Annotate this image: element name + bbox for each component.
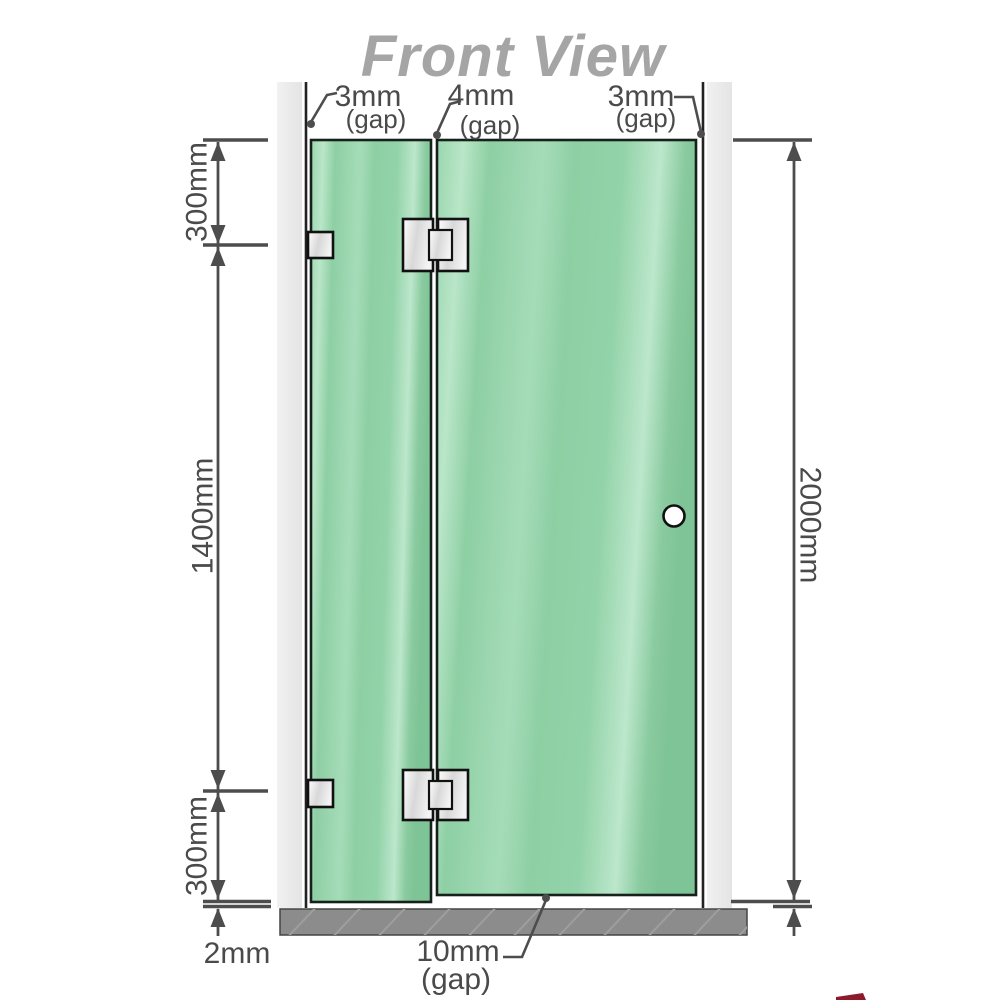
diagram-stage: Front View bbox=[0, 0, 1000, 1000]
dim-label-left-middle-1400mm: 1400mm bbox=[187, 458, 220, 575]
gap-note-bottom: (gap) bbox=[421, 963, 491, 996]
wall-bracket-bottom bbox=[308, 780, 333, 807]
gap-note-left: (gap) bbox=[346, 104, 407, 134]
gap-leader-left bbox=[307, 93, 337, 128]
shower-screen-diagram: Front View bbox=[0, 0, 1000, 1000]
gap-note-right: (gap) bbox=[616, 103, 677, 133]
gap-leader-right bbox=[674, 97, 705, 138]
left-wall bbox=[277, 82, 302, 908]
hinge-bottom bbox=[403, 770, 468, 820]
wall-bracket-top bbox=[308, 232, 333, 258]
door-glass-panel bbox=[437, 140, 696, 895]
right-wall bbox=[707, 82, 732, 908]
hinge-top bbox=[403, 219, 468, 271]
dim-label-left-top-300mm: 300mm bbox=[181, 142, 214, 242]
door-knob bbox=[664, 506, 685, 527]
gap-note-middle: (gap) bbox=[460, 110, 521, 140]
dim-label-floor-gap-2mm: 2mm bbox=[204, 937, 271, 970]
logo-fragment bbox=[836, 993, 866, 1000]
gap-label-middle-4mm: 4mm bbox=[448, 79, 515, 112]
dim-label-total-height-2000mm: 2000mm bbox=[794, 467, 827, 584]
floor-base bbox=[280, 903, 770, 940]
dim-label-left-bottom-300mm: 300mm bbox=[181, 796, 214, 896]
